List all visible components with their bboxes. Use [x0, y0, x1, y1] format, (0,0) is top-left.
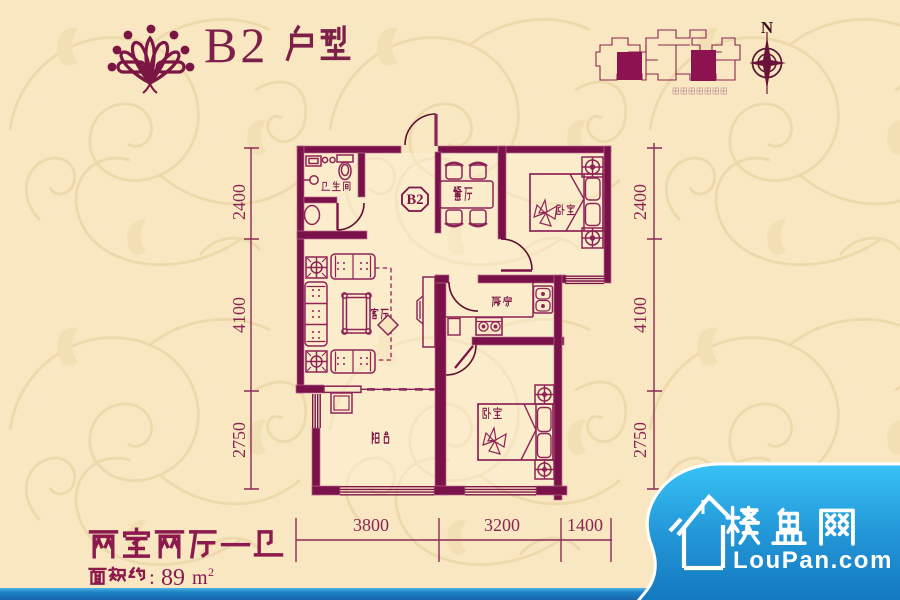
- svg-text:3200: 3200: [484, 515, 520, 535]
- svg-text::: :: [149, 565, 155, 589]
- svg-text:89: 89: [161, 565, 185, 591]
- svg-text:2750: 2750: [630, 422, 650, 458]
- svg-text:3800: 3800: [353, 515, 389, 535]
- svg-text:1400: 1400: [567, 515, 603, 535]
- svg-text:2750: 2750: [229, 422, 249, 458]
- svg-text:4100: 4100: [229, 297, 249, 333]
- svg-text:2400: 2400: [630, 184, 650, 220]
- svg-text:B2: B2: [407, 192, 424, 208]
- svg-text:2: 2: [208, 565, 214, 579]
- svg-text:B2: B2: [204, 17, 268, 73]
- svg-text:LouPan.com: LouPan.com: [733, 547, 893, 574]
- svg-text:4100: 4100: [630, 297, 650, 333]
- svg-text:2400: 2400: [229, 184, 249, 220]
- svg-text:m: m: [192, 567, 208, 589]
